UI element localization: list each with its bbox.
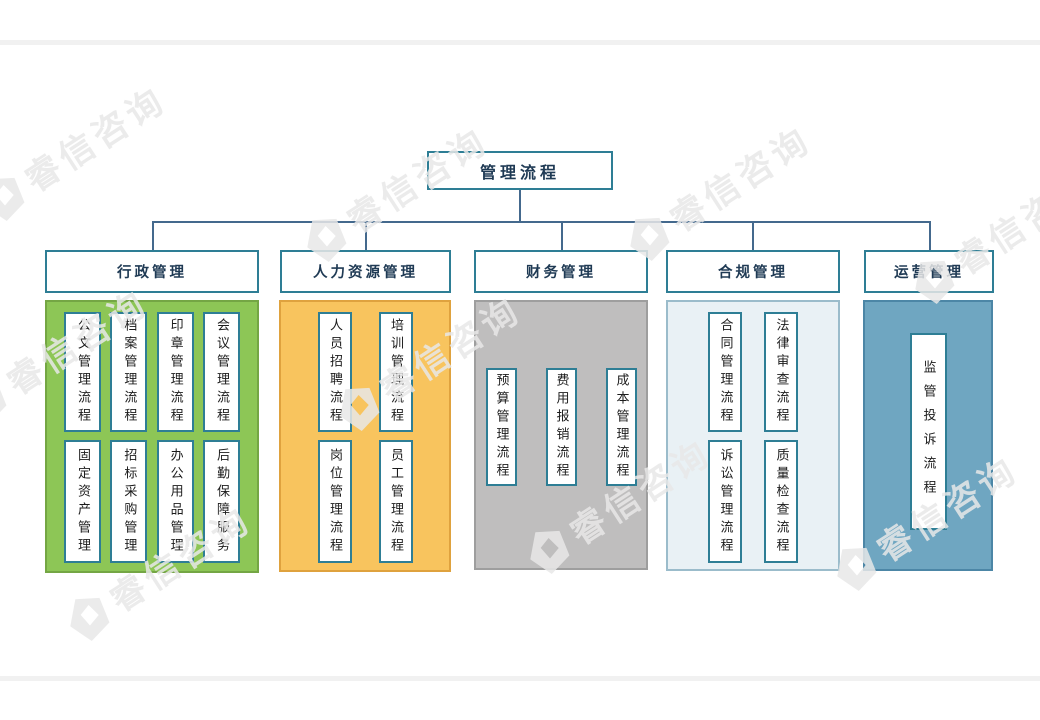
branch-container-operations: 监管投诉流程	[863, 300, 993, 571]
org-chart: 管理流程 行政管理 人力资源管理 财务管理 合规管理 运营管理 公文管理流程 档…	[0, 0, 1040, 720]
process-box: 员工管理流程	[379, 440, 413, 563]
branch-header-label: 财务管理	[526, 261, 596, 282]
branch-header-administration: 行政管理	[45, 250, 259, 293]
branch-header-compliance: 合规管理	[666, 250, 840, 293]
connector-drop-3	[561, 221, 563, 250]
process-box: 办公用品管理	[157, 440, 194, 563]
root-node-label: 管理流程	[480, 159, 560, 183]
branch-container-compliance: 合同管理流程 法律审查流程 诉讼管理流程 质量检查流程	[666, 300, 840, 571]
branch-header-operations: 运营管理	[864, 250, 994, 293]
branch-container-finance: 预算管理流程 费用报销流程 成本管理流程	[474, 300, 648, 570]
root-node: 管理流程	[427, 151, 613, 190]
process-box: 档案管理流程	[110, 312, 147, 432]
branch-container-hr: 人员招聘流程 培训管理流程 岗位管理流程 员工管理流程	[279, 300, 451, 572]
process-box: 监管投诉流程	[910, 333, 947, 530]
process-box: 会议管理流程	[203, 312, 240, 432]
process-box: 质量检查流程	[764, 440, 798, 563]
connector-horizontal	[152, 221, 930, 223]
process-box: 固定资产管理	[64, 440, 101, 563]
process-box: 后勤保障服务	[203, 440, 240, 563]
process-box: 诉讼管理流程	[708, 440, 742, 563]
process-box: 预算管理流程	[486, 368, 517, 486]
process-box: 印章管理流程	[157, 312, 194, 432]
process-box: 成本管理流程	[606, 368, 637, 486]
branch-header-hr: 人力资源管理	[280, 250, 451, 293]
branch-header-label: 合规管理	[718, 261, 788, 282]
process-box: 招标采购管理	[110, 440, 147, 563]
process-box: 合同管理流程	[708, 312, 742, 432]
process-box: 法律审查流程	[764, 312, 798, 432]
process-box: 岗位管理流程	[318, 440, 352, 563]
connector-drop-1	[152, 221, 154, 250]
connector-root-stem	[519, 190, 521, 221]
branch-header-finance: 财务管理	[474, 250, 648, 293]
process-box: 培训管理流程	[379, 312, 413, 432]
connector-drop-5	[929, 221, 931, 250]
branch-header-label: 运营管理	[894, 261, 964, 282]
process-box: 人员招聘流程	[318, 312, 352, 432]
process-box: 公文管理流程	[64, 312, 101, 432]
branch-container-administration: 公文管理流程 档案管理流程 印章管理流程 会议管理流程 固定资产管理 招标采购管…	[45, 300, 259, 573]
process-box: 费用报销流程	[546, 368, 577, 486]
branch-header-label: 行政管理	[117, 261, 187, 282]
connector-drop-2	[365, 221, 367, 250]
connector-drop-4	[752, 221, 754, 250]
branch-header-label: 人力资源管理	[313, 261, 418, 282]
slide: 管理流程 行政管理 人力资源管理 财务管理 合规管理 运营管理 公文管理流程 档…	[0, 0, 1040, 720]
